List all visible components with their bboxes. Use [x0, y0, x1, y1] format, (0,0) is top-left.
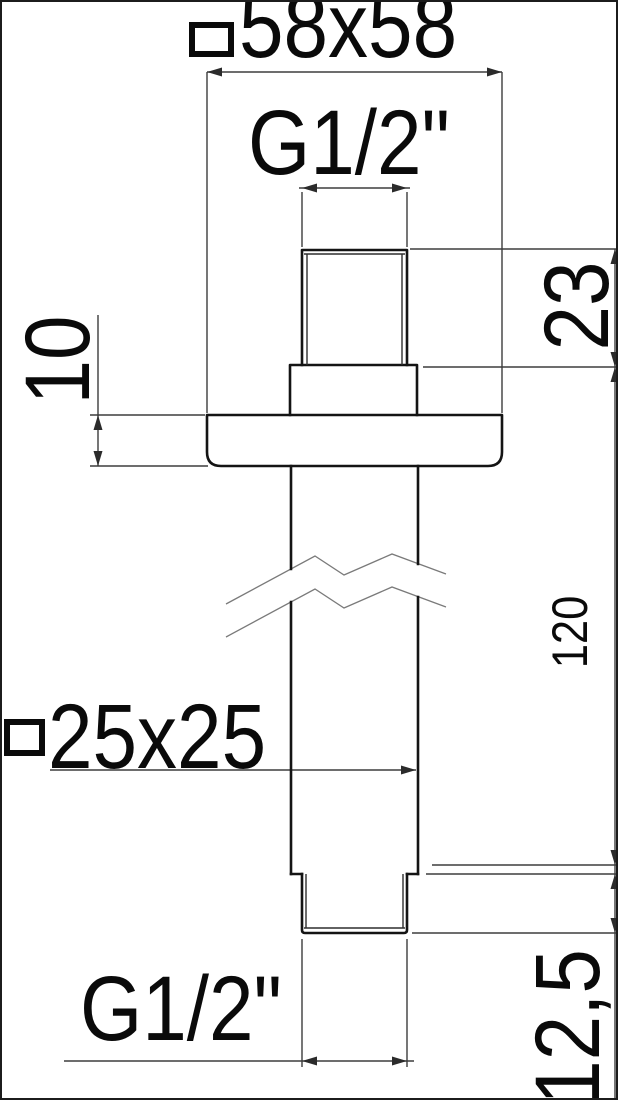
square-section-icon-58 [189, 22, 234, 57]
dim-label-12-5: 12,5 [522, 949, 614, 1100]
dim-label-g12-top: G1/2" [248, 97, 450, 189]
dimension-lines [50, 72, 617, 1099]
ext-lines-right [410, 249, 617, 933]
ext-lines-g12-top [302, 192, 407, 247]
break-lines [226, 554, 446, 637]
flange-outline [207, 415, 502, 466]
dimension-arrows [94, 68, 618, 1066]
dim-label-58x58: 58x58 [239, 0, 457, 72]
collar-outline [290, 365, 417, 415]
square-section-icon-25 [4, 719, 45, 756]
dim-label-25x25: 25x25 [48, 691, 266, 783]
dim-label-120: 120 [545, 596, 595, 669]
dim-label-g12-bottom: G1/2" [80, 963, 282, 1055]
ext-lines-10 [90, 415, 208, 466]
bottom-thread-outline [302, 874, 407, 933]
object-outline [207, 250, 502, 933]
ext-lines-g12-bottom [302, 939, 407, 1067]
top-thread-outline [302, 250, 407, 365]
dim-label-23: 23 [531, 261, 618, 350]
technical-drawing-canvas: 58x58 G1/2" 10 23 120 25x25 G1/2" 12,5 [0, 0, 618, 1100]
dim-label-10: 10 [12, 315, 104, 404]
